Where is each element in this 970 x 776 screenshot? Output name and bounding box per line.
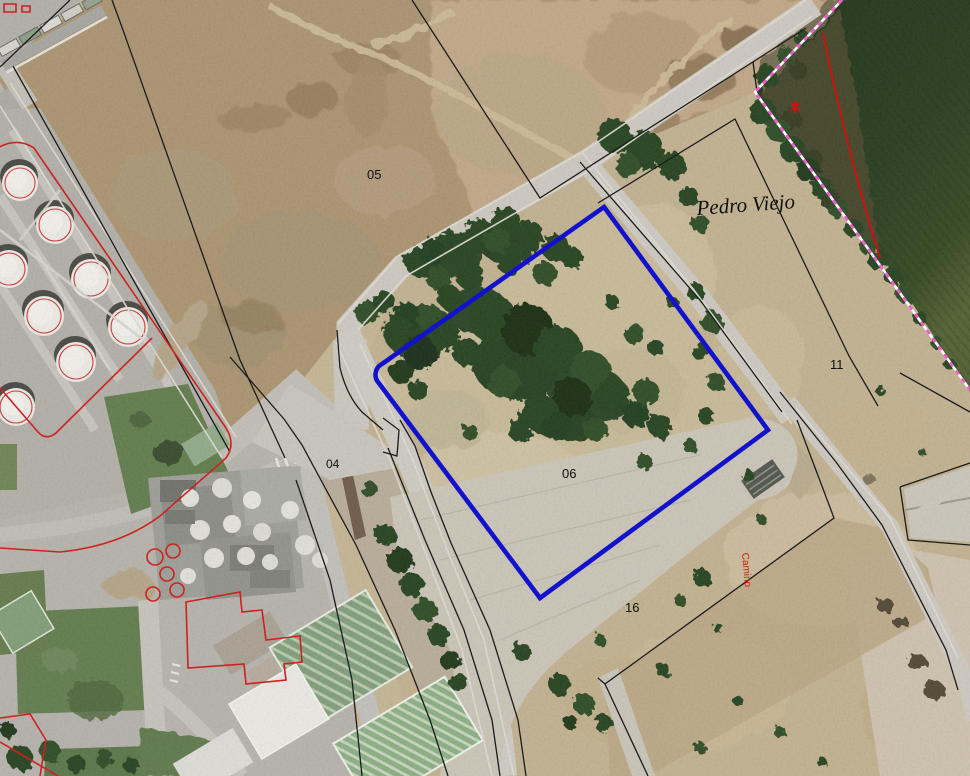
svg-text:05: 05: [367, 167, 381, 182]
svg-text:11: 11: [830, 357, 844, 372]
svg-text:04: 04: [326, 457, 340, 471]
svg-text:06: 06: [562, 466, 576, 481]
svg-text:16: 16: [625, 600, 639, 615]
